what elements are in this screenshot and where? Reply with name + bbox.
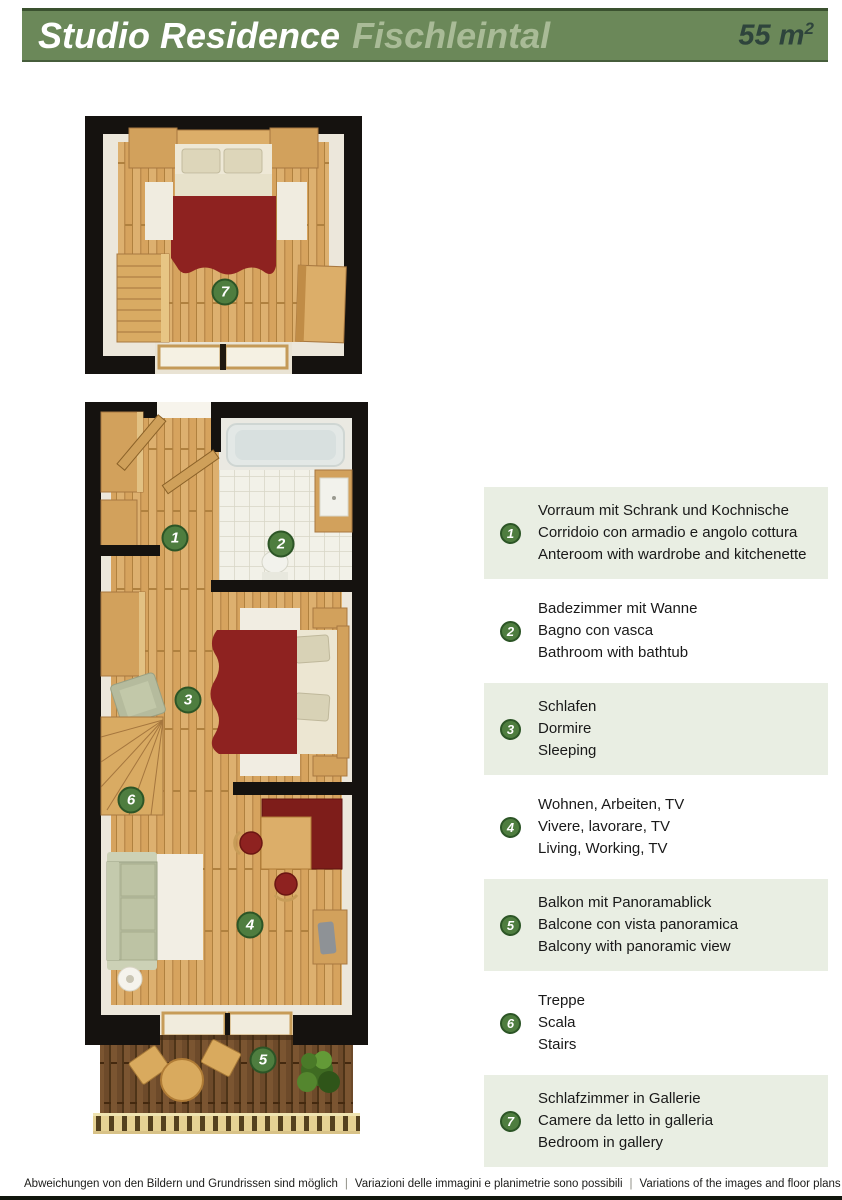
balcony-railing	[93, 1115, 360, 1132]
pillow	[182, 149, 220, 173]
pillow	[224, 149, 262, 173]
legend-badge-1: 1	[500, 523, 521, 544]
legend-badge-6: 6	[500, 1013, 521, 1034]
sofa	[107, 852, 157, 970]
legend-3-it: Dormire	[538, 718, 596, 740]
separator: |	[345, 1178, 348, 1190]
legend-1-en: Anteroom with wardrobe and kitchenette	[538, 544, 806, 566]
tv	[317, 921, 336, 954]
room-badge-7: 7	[213, 280, 238, 305]
svg-text:7: 7	[221, 284, 230, 301]
area-value: 55 m	[738, 19, 804, 51]
nightstand	[145, 182, 173, 240]
disclaimer-de: Abweichungen von den Bildern und Grundri…	[24, 1178, 338, 1190]
legend-item-6: 6 Treppe Scala Stairs	[484, 983, 828, 1063]
svg-text:2: 2	[276, 536, 286, 553]
legend-badge-4: 4	[500, 817, 521, 838]
legend-5-it: Balcone con vista panoramica	[538, 914, 738, 936]
disclaimer-en: Variations of the images and floor plans…	[640, 1178, 842, 1190]
red-blanket	[171, 196, 276, 275]
area-exponent: 2	[805, 19, 814, 38]
legend-6-it: Scala	[538, 1012, 585, 1034]
stool	[240, 832, 262, 854]
gallery-window	[155, 342, 292, 374]
area-label: 55 m2	[738, 19, 814, 53]
nightstand	[313, 756, 347, 776]
room-badge-2: 2	[269, 532, 294, 557]
legend-2-it: Bagno con vasca	[538, 620, 698, 642]
legend-7-en: Bedroom in gallery	[538, 1132, 713, 1154]
legend-badge-5: 5	[500, 915, 521, 936]
pillow	[294, 635, 330, 663]
legend-2-de: Badezimmer mit Wanne	[538, 598, 698, 620]
legend-item-4: 4 Wohnen, Arbeiten, TV Vivere, lavorare,…	[484, 787, 828, 867]
page-title: Studio Residence	[38, 15, 340, 57]
svg-text:5: 5	[259, 1052, 268, 1069]
legend-4-en: Living, Working, TV	[538, 838, 684, 860]
gallery-dresser	[296, 265, 347, 343]
main-floor-plan: 1 2 3 6 4 5	[85, 402, 368, 1134]
legend-item-2: 2 Badezimmer mit Wanne Bagno con vasca B…	[484, 591, 828, 671]
header-bar: Studio Residence Fischleintal 55 m2	[22, 8, 828, 62]
svg-text:4: 4	[245, 917, 255, 934]
svg-text:1: 1	[171, 530, 179, 547]
rug	[157, 854, 203, 960]
brochure-page: Studio Residence Fischleintal 55 m2	[0, 0, 842, 1200]
legend-item-3: 3 Schlafen Dormire Sleeping	[484, 683, 828, 775]
disclaimer: Abweichungen von den Bildern und Grundri…	[24, 1178, 836, 1190]
legend-7-it: Camere da letto in galleria	[538, 1110, 713, 1132]
legend-1-it: Corridoio con armadio e angolo cottura	[538, 522, 806, 544]
legend-4-de: Wohnen, Arbeiten, TV	[538, 794, 684, 816]
bottom-rule	[0, 1196, 842, 1200]
room-badge-3: 3	[176, 688, 201, 713]
legend-4-it: Vivere, lavorare, TV	[538, 816, 684, 838]
page-subtitle: Fischleintal	[352, 15, 550, 57]
legend-2-en: Bathroom with bathtub	[538, 642, 698, 664]
legend-5-de: Balkon mit Panoramablick	[538, 892, 738, 914]
balcony-table	[161, 1059, 203, 1101]
legend-3-en: Sleeping	[538, 740, 596, 762]
nightstand	[277, 182, 307, 240]
legend-item-7: 7 Schlafzimmer in Gallerie Camere da let…	[484, 1075, 828, 1167]
entry-opening	[157, 402, 213, 418]
gallery-stairs	[117, 254, 169, 342]
room-badge-4: 4	[238, 913, 263, 938]
legend-6-de: Treppe	[538, 990, 585, 1012]
svg-text:3: 3	[184, 692, 193, 709]
room-badge-5: 5	[251, 1048, 276, 1073]
legend-1-de: Vorraum mit Schrank und Kochnische	[538, 500, 806, 522]
legend: 1 Vorraum mit Schrank und Kochnische Cor…	[484, 487, 828, 1179]
legend-item-5: 5 Balkon mit Panoramablick Balcone con v…	[484, 879, 828, 971]
gallery-floor-plan: 7	[85, 116, 362, 374]
legend-3-de: Schlafen	[538, 696, 596, 718]
stool	[275, 873, 297, 895]
disclaimer-it: Variazioni delle immagini e planimetrie …	[355, 1178, 623, 1190]
room-badge-6: 6	[119, 788, 144, 813]
cabinet	[101, 592, 145, 676]
legend-item-1: 1 Vorraum mit Schrank und Kochnische Cor…	[484, 487, 828, 579]
separator: |	[630, 1178, 633, 1190]
red-blanket	[211, 630, 298, 754]
legend-badge-7: 7	[500, 1111, 521, 1132]
legend-7-de: Schlafzimmer in Gallerie	[538, 1088, 713, 1110]
pillow	[294, 693, 330, 721]
partition-wall	[233, 782, 352, 795]
kitchenette-cabinet	[101, 500, 137, 546]
legend-6-en: Stairs	[538, 1034, 585, 1056]
room-badge-1: 1	[163, 526, 188, 551]
svg-text:6: 6	[127, 792, 136, 809]
table	[261, 817, 311, 869]
balcony-doors	[160, 1013, 293, 1036]
bed-headboard	[337, 626, 349, 758]
nightstand	[313, 608, 347, 628]
legend-badge-2: 2	[500, 621, 521, 642]
legend-badge-3: 3	[500, 719, 521, 740]
legend-5-en: Balcony with panoramic view	[538, 936, 738, 958]
